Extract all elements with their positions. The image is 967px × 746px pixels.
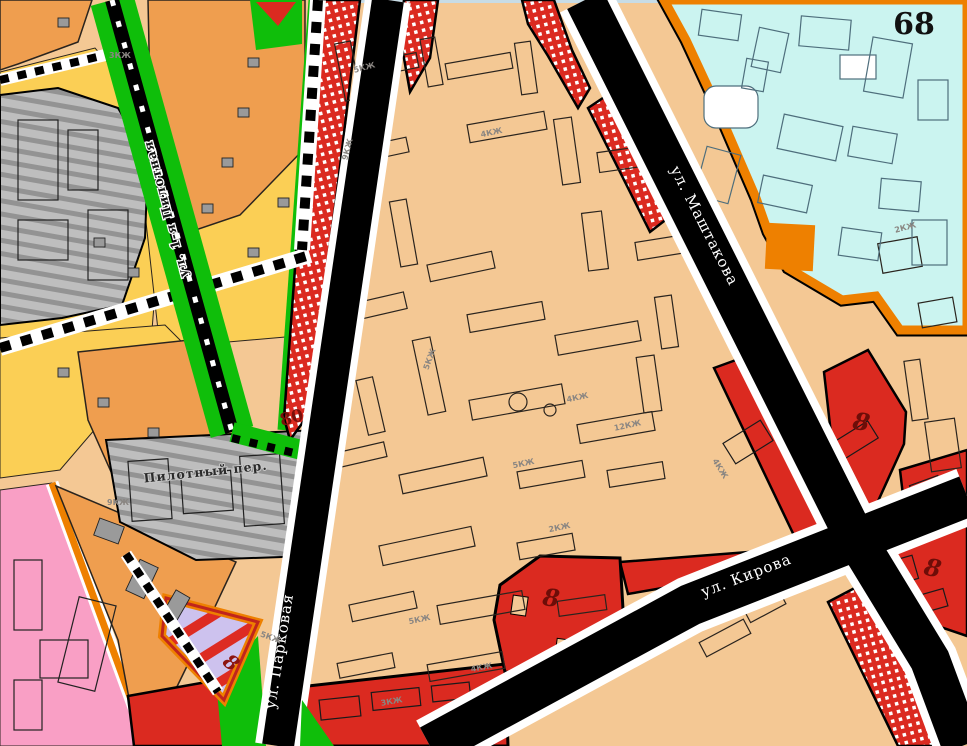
zoning-map: ул. Маштакова ул. Кирова ул. Парковая ул… [0,0,967,746]
block-number-68: 68 [893,7,935,42]
map-viewport[interactable]: ул. Маштакова ул. Кирова ул. Парковая ул… [0,0,967,746]
bldg-label: 3КЖ [109,51,131,60]
bldg-label: 9КЖ [107,498,129,507]
